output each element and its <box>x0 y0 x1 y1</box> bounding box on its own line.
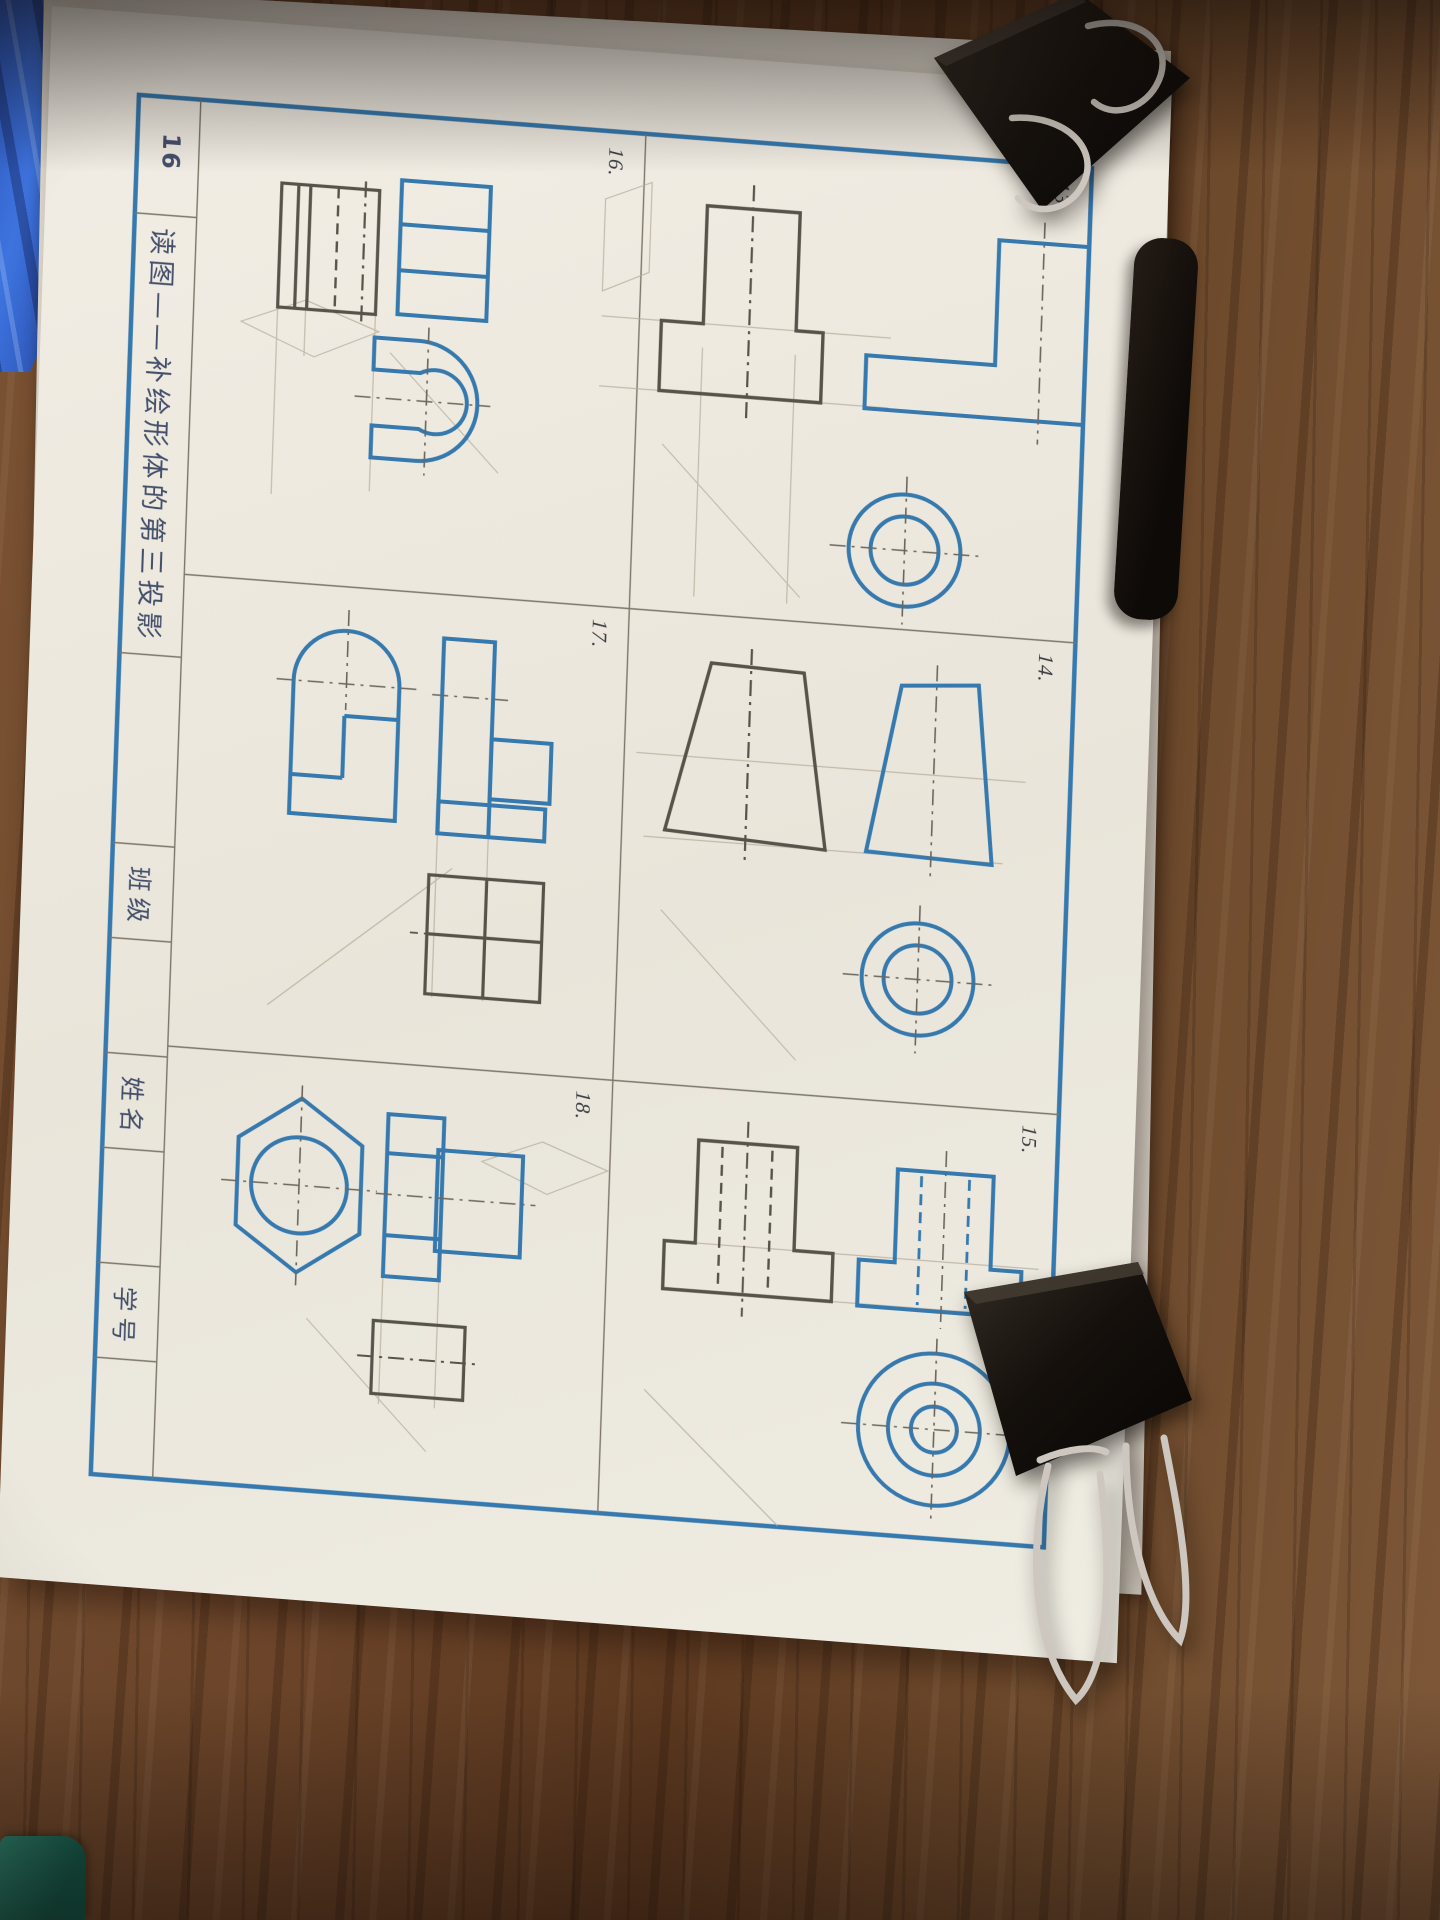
problem-label-16: 16. <box>602 147 628 178</box>
problem13-given-views <box>847 229 1090 619</box>
problem-label-17: 17. <box>586 618 612 649</box>
clip-wire-handles <box>1036 1438 1185 1700</box>
name-field-label: 姓名 <box>114 1075 152 1140</box>
problem14-given-views <box>860 677 998 1040</box>
problem18-pencil-answer <box>356 1319 480 1401</box>
problem18-centerlines <box>218 1079 539 1303</box>
binder-clip-bottom <box>928 1248 1228 1728</box>
clip-body <box>934 0 1190 210</box>
problem16-given-views <box>370 179 491 466</box>
student-id-field-label: 学号 <box>106 1285 144 1350</box>
problem15-pencil-answer <box>662 1116 837 1324</box>
problem-label-15: 15. <box>1016 1124 1042 1155</box>
photo-scene: { "worksheet": { "page_number": "16", "t… <box>0 0 1440 1920</box>
problem16-pencil-answer <box>277 175 380 322</box>
binder-clip-top <box>916 0 1216 238</box>
problem17-given-views <box>289 627 555 842</box>
problem13-pencil-answer <box>658 179 828 426</box>
problem-label-14: 14. <box>1032 653 1058 684</box>
class-field-label: 班级 <box>121 865 159 930</box>
problem17-pencil-answer <box>408 873 544 1002</box>
green-object <box>0 1836 86 1920</box>
page-number: 16 <box>156 132 185 172</box>
problem-label-18: 18. <box>569 1090 595 1121</box>
problem18-given-views <box>234 1094 524 1290</box>
problem14-pencil-answer <box>664 643 832 867</box>
